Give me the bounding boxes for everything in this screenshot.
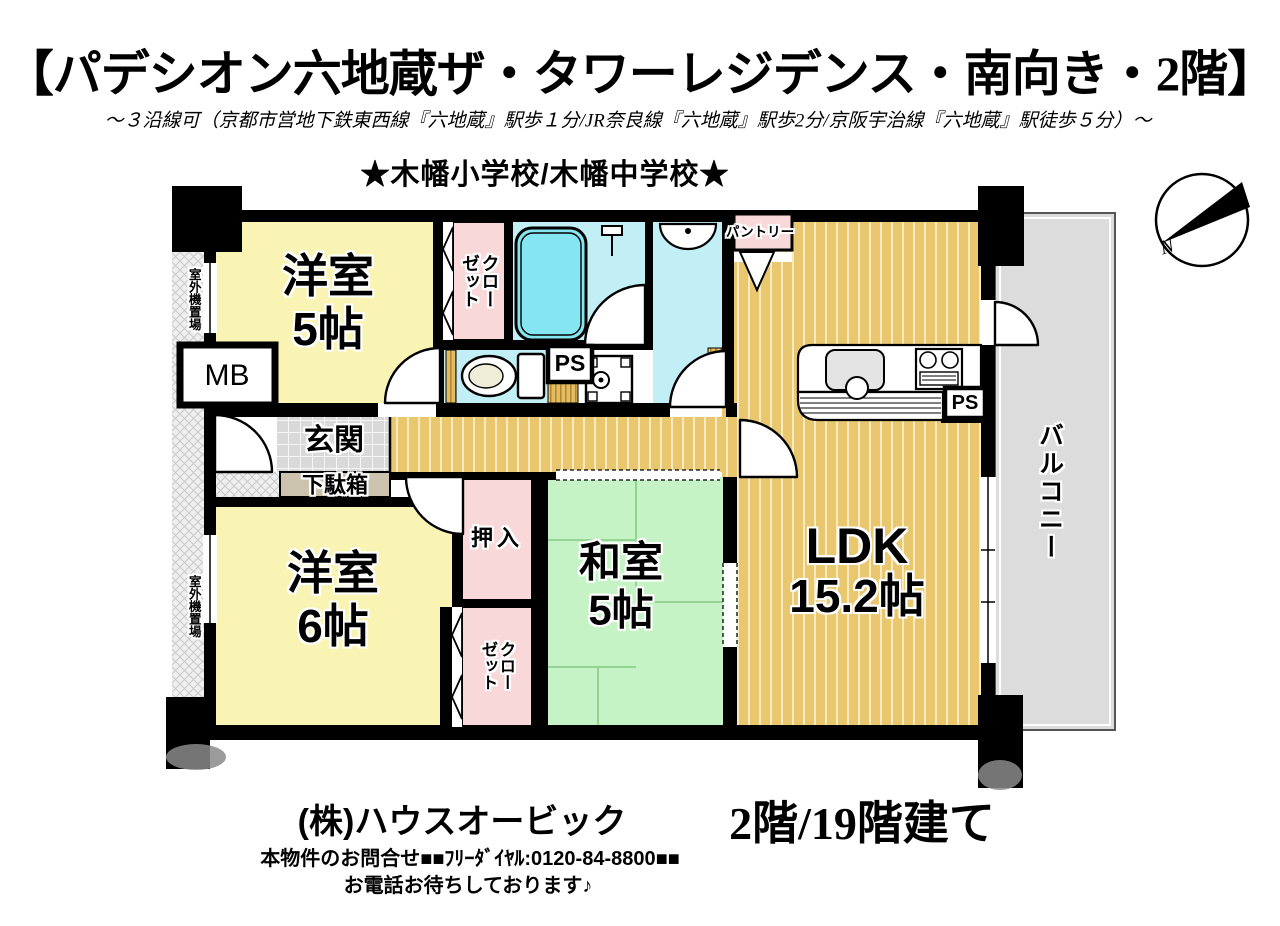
bathtub [516,228,586,340]
outdoor-unit-top-label: 室外機置場 [186,259,200,339]
room-name: 洋室 [282,250,374,303]
oshiire-label: 押入 [471,527,523,552]
closet-top-label: クローゼット [460,249,499,313]
floorplan-drawing [0,0,1280,926]
hallway-floor [390,417,737,472]
room-label-western2: 洋室 6帖 [287,547,379,653]
genkan-label: 玄関 [304,424,364,458]
floorplan-flyer: 【パデシオン六地蔵ザ・タワーレジデンス・南向き・2階】 ～３沿線可（京都市営地下… [0,0,1280,926]
ps-top-label: PS [555,351,586,377]
entrance-door [215,415,272,472]
room-size: 5帖 [579,587,663,635]
pantry-label: パントリー [726,224,794,239]
room-name: 和室 [579,539,663,587]
room-label-japanese: 和室 5帖 [579,539,663,636]
page-title: 【パデシオン六地蔵ザ・タワーレジデンス・南向き・2階】 [5,48,1276,103]
page-subtitle: ～３沿線可（京都市営地下鉄東西線『六地蔵』駅歩１分/JR奈良線『六地蔵』駅歩2分… [104,110,1151,131]
contact-line: 本物件のお問合せ■■ﾌﾘｰﾀﾞｲﾔﾙ:0120-84-8800■■ [260,848,680,870]
room-name: 洋室 [287,547,379,600]
floor-info: 2階/19階建て [729,798,995,850]
room-label-ldk: LDK 15.2帖 [789,521,925,623]
ps-kitchen-label: PS [952,392,979,414]
balcony-label: バルコニー [1036,407,1063,577]
closet-bottom-label: クローゼット [478,637,514,695]
room-size: 6帖 [287,600,379,653]
message-line: お電話お待ちしております♪ [344,875,593,897]
room-size: 5帖 [282,303,374,356]
company-name: (株)ハウスオービック [298,803,627,841]
room-name: LDK [789,521,925,571]
getabako-label: 下駄箱 [302,474,368,499]
school-district: ★木幡小学校/木幡中学校★ [360,159,729,191]
room-size: 15.2帖 [789,571,925,623]
outdoor-unit-bottom-label: 室外機置場 [186,566,200,646]
toilet [462,354,544,398]
room-label-western1: 洋室 5帖 [282,250,374,356]
watermark-smudges [166,744,1022,790]
mb-label: MB [205,359,250,393]
kitchen-stove [916,349,962,389]
